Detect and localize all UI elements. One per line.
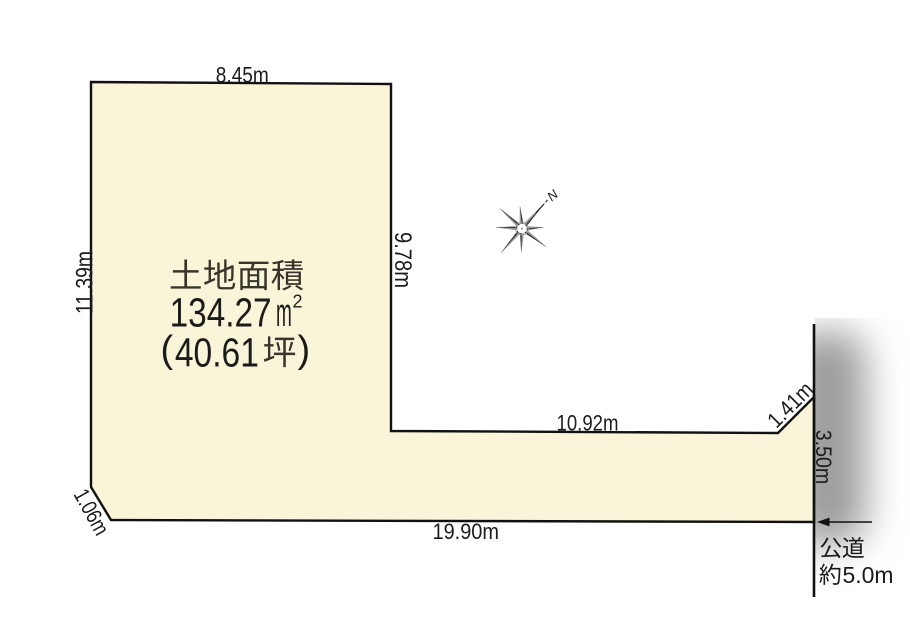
svg-text:3.50m: 3.50m — [811, 430, 836, 485]
svg-text:8.45m: 8.45m — [216, 63, 269, 88]
svg-text:): ) — [298, 329, 311, 371]
svg-text:11.39m: 11.39m — [72, 251, 99, 314]
svg-text:2: 2 — [293, 292, 303, 312]
svg-text:9.78m: 9.78m — [389, 232, 416, 288]
svg-text:19.90m: 19.90m — [433, 519, 500, 544]
svg-text:10.92m: 10.92m — [557, 411, 619, 436]
svg-text:40.61: 40.61 — [175, 330, 259, 376]
svg-text:(: ( — [161, 329, 174, 371]
svg-text:5.0m: 5.0m — [843, 562, 894, 588]
svg-text:m: m — [276, 291, 292, 335]
